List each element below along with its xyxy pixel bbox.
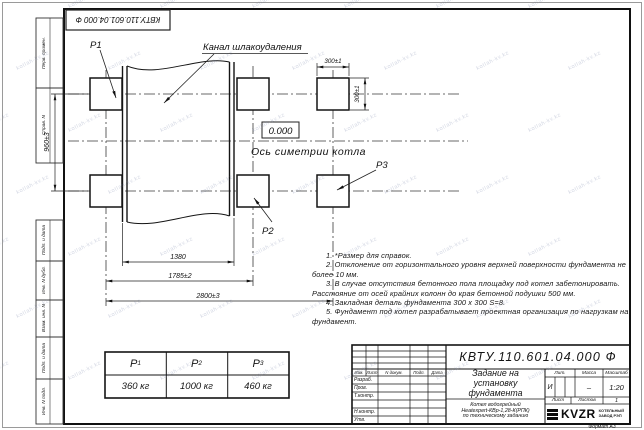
pad-p1-bottom: [90, 175, 122, 207]
title-block-doc-number: КВТУ.110.601.04.000 Ф: [446, 345, 630, 369]
pad-p3-bottom: [317, 175, 349, 207]
title-line: фундамента: [468, 389, 522, 399]
title-block-title: Задание на установку фундамента: [446, 369, 545, 399]
note-item: 1. *Размер для справок.: [312, 251, 630, 260]
p3-label: P3: [376, 160, 388, 171]
title-block-subtitle: Котел водогрейный Heatexpert-КВр-1,28-К(…: [446, 399, 545, 424]
sig-row-blank: [352, 400, 378, 408]
company-block: KVZR КОТЕЛЬНЫЙ ЗАВОД РЭП: [547, 404, 629, 424]
left-margin-boxes: [36, 18, 63, 424]
format-label: Формат А3: [572, 424, 632, 430]
dim-960: 960±3: [44, 132, 51, 152]
sig-row-prov: Пров.: [352, 384, 378, 392]
sig-row-tkontr: Т.контр.: [352, 392, 378, 400]
load-table-header-p1: P1: [105, 352, 166, 375]
mass-value: –: [575, 377, 603, 397]
notes-block: 1. *Размер для справок. 2. Отклонение от…: [312, 251, 630, 326]
sig-row-utv: Утв.: [352, 416, 378, 424]
load-table-value-p2: 1000 кг: [166, 375, 227, 398]
load-table-value-p1: 360 кг: [105, 375, 166, 398]
pad-p1-top: [90, 78, 122, 110]
dim-300-h: 300±1: [324, 58, 341, 65]
pad-p3-top: [317, 78, 349, 110]
rev-header-data: Дата: [428, 369, 446, 376]
rev-header-list: Лист: [366, 369, 378, 376]
svg-text:Взам. инв. N: Взам. инв. N: [41, 304, 47, 332]
svg-text:Инв. N подл.: Инв. N подл.: [41, 387, 47, 415]
lit-header: Лит.: [545, 369, 575, 377]
svg-text:Подп. и дата: Подп. и дата: [41, 225, 47, 255]
left-margin-labels: Перв. примен. Справ. N Подп. и дата Инв.…: [41, 37, 47, 415]
dim-2800: 2800±3: [195, 293, 219, 300]
sheet-label: Лист: [545, 397, 571, 404]
p1-subscript: 1: [137, 360, 141, 367]
svg-text:Перв. примен.: Перв. примен.: [41, 37, 47, 69]
rev-header-ndoc: N докум.: [378, 369, 410, 376]
foundation-pads: [90, 78, 349, 207]
doc-number-stamp: КВТУ.110.601.04.000 Ф: [66, 10, 170, 30]
svg-text:Подп. и дата: Подп. и дата: [41, 343, 47, 373]
company-name: КОТЕЛЬНЫЙ ЗАВОД РЭП: [599, 409, 624, 419]
scale-header: Масштаб: [603, 369, 630, 377]
load-table-value-p3: 460 кг: [227, 375, 289, 398]
sig-row-nkontr: Н.контр.: [352, 408, 378, 416]
scale-value: 1:20: [603, 377, 630, 397]
kvzr-logo-icon: [547, 409, 558, 420]
axis-label: Ось симетрии котла: [251, 146, 366, 158]
pad-p2-bottom: [237, 175, 269, 207]
note-item: 4. Закладная деталь фундамента 300 x 300…: [312, 298, 630, 307]
sheets-label: Листов: [571, 397, 603, 404]
boiler-outline: [123, 61, 235, 224]
kvzr-logo-text: KVZR: [561, 407, 596, 421]
note-item: 5. Фундамент под котел разрабатывает про…: [312, 307, 630, 326]
dim-1380: 1380: [170, 254, 186, 261]
sig-row-razrab: Разраб.: [352, 376, 378, 384]
mass-header: Масса: [575, 369, 603, 377]
drawing-sheet: КВТУ.110.601.04.000 Ф Перв. примен. Спра…: [0, 0, 644, 430]
dim-300-v: 300±1: [354, 85, 361, 102]
dim-1785: 1785±2: [168, 273, 191, 280]
p3-subscript: 3: [260, 360, 264, 367]
rev-header-podp: Подп.: [410, 369, 428, 376]
pad-p2-top: [237, 78, 269, 110]
doc-number-stamp-text: КВТУ.110.601.04.000 Ф: [75, 15, 160, 24]
p1-symbol: P: [130, 358, 137, 370]
channel-label: Канал шлакоудаления: [203, 42, 302, 53]
subtitle-line: по техническому заданию: [463, 414, 528, 420]
svg-text:Справ. N: Справ. N: [41, 114, 47, 135]
p2-subscript: 2: [198, 360, 202, 367]
rev-header-izm: Изм.: [352, 369, 366, 376]
level-value: 0.000: [269, 126, 293, 137]
p1-label: P1: [90, 40, 102, 51]
note-item: 3. В случае отсутствия бетонного пола пл…: [312, 279, 630, 298]
note-item: 2. Отклонение от горизонтального уровня …: [312, 260, 630, 279]
p2-label: P2: [262, 226, 274, 237]
p3-symbol: P: [253, 358, 260, 370]
lit-value: И: [545, 377, 555, 397]
load-table-header-p3: P3: [227, 352, 289, 375]
sheets-value: 1: [603, 397, 630, 404]
svg-text:Инв. N дубл.: Инв. N дубл.: [41, 266, 47, 294]
company-line: ЗАВОД РЭП: [599, 414, 624, 419]
load-table-header-p2: P2: [166, 352, 227, 375]
